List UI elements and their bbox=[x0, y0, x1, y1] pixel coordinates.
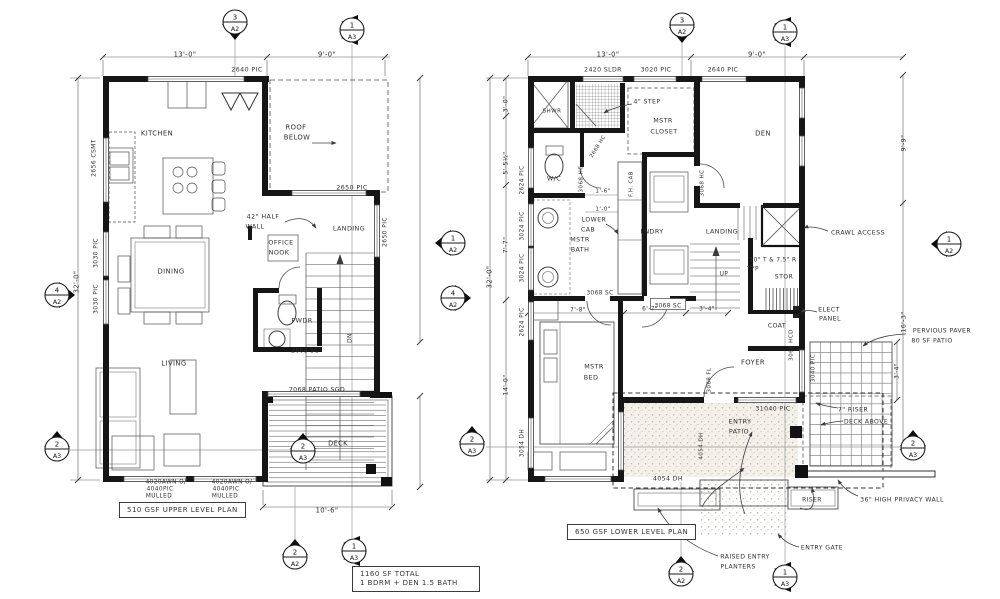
total-area-note-box: 1160 SF TOTAL 1 BDRM + DEN 1.5 BATH bbox=[352, 566, 480, 592]
plan-label: BATH bbox=[571, 245, 590, 253]
section-marker: 2A3 bbox=[459, 426, 485, 456]
upper-plan-title: 510 GSF UPPER LEVEL PLAN bbox=[127, 506, 238, 514]
plan-label: PWDR bbox=[291, 316, 312, 324]
plan-labels: 13'-0"9'-0"2640 PIC2656 CSMT3030 PIC3030… bbox=[72, 50, 971, 570]
plan-label: 10" T & 7.5" R bbox=[750, 257, 797, 263]
section-marker-sheet: A3 bbox=[348, 34, 356, 41]
section-marker-number: 1 bbox=[783, 24, 787, 32]
section-marker-number: 1 bbox=[947, 236, 951, 244]
plan-label: WALL bbox=[245, 222, 264, 230]
plan-label: 2624 PIC bbox=[519, 307, 525, 336]
plan-label: ENTRY GATE bbox=[801, 544, 843, 551]
plan-label: LNDRY bbox=[640, 227, 663, 235]
plan-label: LIVING bbox=[161, 359, 186, 367]
plan-label: 4" STEP bbox=[634, 98, 661, 105]
section-marker-sheet: A2 bbox=[231, 26, 239, 33]
section-marker-number: 1 bbox=[451, 235, 455, 243]
floor-plan-sheet: 13'-0"9'-0"2640 PIC2656 CSMT3030 PIC3030… bbox=[0, 0, 1000, 599]
plan-label: 13'-0" bbox=[597, 50, 620, 58]
plan-label: KITCHEN bbox=[141, 129, 173, 137]
plan-label: BED bbox=[584, 373, 599, 381]
plan-label: ENTRY bbox=[729, 417, 752, 425]
plan-label: W/C bbox=[547, 174, 561, 182]
plan-label: 3040 PIC bbox=[810, 354, 816, 382]
section-marker-sheet: A2 bbox=[449, 302, 457, 309]
section-marker-number: 4 bbox=[451, 290, 456, 298]
plan-label: 4040PIC bbox=[147, 486, 174, 492]
plan-label: PATIO bbox=[729, 427, 749, 435]
plan-label: NOOK bbox=[269, 248, 290, 256]
plan-label: 9'-9" bbox=[900, 135, 907, 152]
plan-label: PERVIOUS PAVER bbox=[913, 327, 971, 334]
plan-label: ELECT bbox=[818, 306, 840, 313]
section-marker-sheet: A2 bbox=[53, 299, 61, 306]
plan-label: 32'-0" bbox=[72, 271, 80, 294]
plan-label: 3054 DH bbox=[519, 429, 525, 457]
section-marker: 1A3 bbox=[342, 536, 366, 566]
section-marker: 1A3 bbox=[340, 15, 364, 45]
plan-label: 2668 HC bbox=[589, 134, 607, 159]
plan-label: 3024 PIC bbox=[519, 253, 525, 282]
section-marker: 2A3 bbox=[290, 433, 316, 463]
total-area-line1: 1160 SF TOTAL bbox=[360, 570, 472, 579]
plan-label: F.H. CAB bbox=[628, 171, 634, 197]
section-marker: 1A2 bbox=[435, 230, 465, 256]
section-marker-number: 1 bbox=[783, 569, 787, 577]
section-marker-number: 2 bbox=[470, 436, 474, 444]
plan-label: 42" HALF bbox=[247, 212, 280, 220]
section-marker: 2A3 bbox=[900, 430, 926, 460]
plan-label: RISER bbox=[802, 496, 822, 503]
plan-label: DECK bbox=[328, 439, 348, 447]
total-area-line2: 1 BDRM + DEN 1.5 BATH bbox=[360, 579, 472, 588]
plan-label: 5'-5½" bbox=[501, 151, 509, 174]
plan-label: DEN bbox=[755, 129, 771, 137]
plan-label: DINING bbox=[157, 267, 184, 275]
plan-label: FOYER bbox=[741, 358, 765, 366]
plan-label: 31040 PIC bbox=[755, 405, 790, 412]
plan-label: MULLED bbox=[146, 493, 172, 499]
plan-label: 7" RISER bbox=[838, 406, 869, 413]
plan-label: 6'-7" bbox=[642, 306, 658, 312]
plan-label: MSTR bbox=[653, 116, 673, 124]
section-marker-number: 2 bbox=[293, 549, 297, 557]
plan-label: PANEL bbox=[819, 315, 841, 322]
section-marker-number: 1 bbox=[350, 22, 354, 30]
plan-label: 4054 DH bbox=[698, 432, 704, 459]
plan-label: 3068 HCD bbox=[788, 329, 794, 361]
plan-label: DECK ABOVE bbox=[844, 418, 888, 425]
section-marker-sheet: A3 bbox=[781, 581, 789, 588]
plan-label: 32'-0" bbox=[485, 266, 493, 289]
plan-label: 2650 PIC bbox=[336, 184, 367, 191]
plan-label: TYP bbox=[746, 266, 759, 272]
section-marker-number: 3 bbox=[233, 14, 237, 22]
plan-label: DN bbox=[346, 333, 353, 343]
section-marker-sheet: A3 bbox=[350, 555, 358, 562]
section-marker: 3A2 bbox=[669, 13, 695, 43]
plan-label: 2650 PIC bbox=[381, 217, 388, 247]
plan-label: 3020 PIC bbox=[641, 66, 672, 73]
section-marker: 1A3 bbox=[773, 562, 797, 592]
plan-label: 3068 SC bbox=[654, 303, 681, 309]
plan-label: 16'-3" bbox=[900, 312, 907, 333]
plan-label: RAISED ENTRY bbox=[720, 553, 769, 560]
plan-label: STOR bbox=[775, 273, 794, 280]
plan-label: CRAWL ACCESS bbox=[831, 229, 885, 236]
plan-label: 7068 PATIO SGD bbox=[289, 386, 345, 393]
plan-label: 2624 PIC bbox=[519, 165, 525, 194]
section-marker-sheet: A2 bbox=[449, 247, 457, 254]
section-marker-sheet: A3 bbox=[781, 36, 789, 43]
section-marker-sheet: A2 bbox=[677, 578, 685, 585]
section-marker: 2A2 bbox=[668, 556, 694, 586]
plan-label: 7'-7" bbox=[502, 237, 509, 254]
section-marker-number: 2 bbox=[679, 566, 683, 574]
plan-label: 3068 FL bbox=[706, 367, 712, 393]
section-marker-number: 2 bbox=[301, 443, 305, 451]
plan-label: 2656 CSMT bbox=[90, 139, 97, 177]
plan-label: PLANTERS bbox=[720, 563, 755, 570]
plan-label: 3030 PIC bbox=[92, 284, 99, 314]
plan-label: 2640 PIC bbox=[231, 66, 262, 73]
plan-label: 13'-0" bbox=[174, 50, 197, 58]
plan-label: 3024 PIC bbox=[519, 211, 525, 240]
plan-label: 4020AWN O/ bbox=[212, 479, 253, 485]
plan-label: MSTR bbox=[584, 362, 604, 370]
plan-label: 3068 HC bbox=[578, 166, 584, 193]
section-marker: 2A3 bbox=[44, 431, 70, 461]
section-marker-sheet: A2 bbox=[291, 561, 299, 568]
section-marker: 4A2 bbox=[45, 282, 75, 308]
plan-label: ROOF bbox=[286, 123, 307, 131]
lower-plan-title: 650 GSF LOWER LEVEL PLAN bbox=[575, 528, 688, 536]
plan-label: CLOSET bbox=[650, 127, 677, 135]
section-marker-sheet: A3 bbox=[53, 453, 61, 460]
plan-label: 3'-4" bbox=[894, 363, 900, 379]
section-marker-number: 2 bbox=[911, 440, 915, 448]
plan-label: 3030 PIC bbox=[92, 238, 99, 268]
section-marker-number: 2 bbox=[55, 441, 59, 449]
section-marker: 2A2 bbox=[282, 539, 308, 569]
plan-label: 10'-6" bbox=[316, 506, 339, 514]
plan-label: BELOW bbox=[284, 133, 311, 141]
plan-label: SHWR bbox=[543, 108, 562, 114]
plan-label: 36" HIGH PRIVACY WALL bbox=[860, 496, 944, 503]
section-marker-number: 4 bbox=[55, 287, 60, 295]
plan-label: UP bbox=[720, 271, 729, 277]
plan-label: MSTR bbox=[570, 235, 590, 243]
fixtures-furniture bbox=[96, 80, 935, 510]
plan-label: COAT bbox=[768, 322, 786, 329]
section-marker-sheet: A3 bbox=[468, 448, 476, 455]
plan-label: 2420 SLDR bbox=[584, 66, 622, 73]
section-marker: 1A3 bbox=[773, 17, 797, 47]
section-marker-sheet: A2 bbox=[678, 29, 686, 36]
plan-label: 3'-0" bbox=[502, 96, 509, 113]
lower-plan-title-box: 650 GSF LOWER LEVEL PLAN bbox=[567, 524, 696, 540]
plan-label: 1'-6" bbox=[595, 188, 610, 194]
plan-label: 4054 DH bbox=[653, 475, 683, 482]
plan-label: 2640 PIC bbox=[708, 66, 739, 73]
plan-label: 1'-0" bbox=[595, 206, 610, 212]
plan-label: 3068 SC bbox=[586, 290, 613, 296]
plan-label: LANDING bbox=[706, 227, 738, 235]
plan-label: 7'-8" bbox=[570, 307, 586, 313]
plan-label: 3068 HC bbox=[699, 170, 705, 197]
plan-label: 9'-0" bbox=[748, 50, 766, 58]
plan-label: OFFICE bbox=[268, 238, 293, 246]
plan-label: CAB bbox=[581, 226, 595, 233]
section-marker: 3A2 bbox=[222, 10, 248, 40]
plan-label: 2668 SC bbox=[291, 347, 319, 354]
upper-plan-title-box: 510 GSF UPPER LEVEL PLAN bbox=[119, 502, 246, 518]
plan-label: 14'-0" bbox=[502, 375, 509, 396]
section-marker-sheet: A3 bbox=[909, 452, 917, 459]
plan-label: 4040PIC bbox=[213, 486, 240, 492]
plan-label: 9'-0" bbox=[318, 50, 336, 58]
plan-label: LANDING bbox=[333, 224, 365, 232]
section-marker: 4A2 bbox=[441, 285, 471, 311]
plan-label: 4020AWN O/ bbox=[146, 479, 187, 485]
plan-label: 3'-4" bbox=[699, 306, 715, 312]
section-marker-sheet: A3 bbox=[299, 455, 307, 462]
plan-label: 80 SF PATIO bbox=[911, 337, 952, 344]
section-marker-number: 3 bbox=[680, 17, 684, 25]
section-marker: 1A2 bbox=[931, 231, 961, 257]
section-marker-number: 1 bbox=[352, 543, 356, 551]
plan-label: LOWER bbox=[582, 216, 607, 223]
plan-label: MULLED bbox=[212, 493, 238, 499]
section-marker-sheet: A2 bbox=[945, 248, 953, 255]
